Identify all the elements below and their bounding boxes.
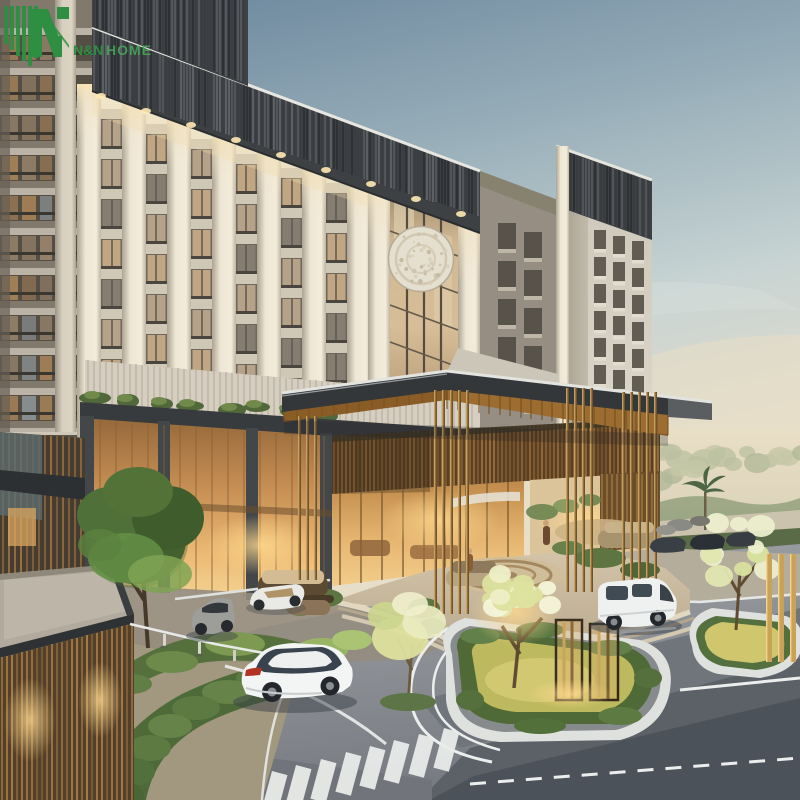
svg-text:HOME: HOME [106,42,152,58]
svg-text:N&N: N&N [73,42,103,58]
